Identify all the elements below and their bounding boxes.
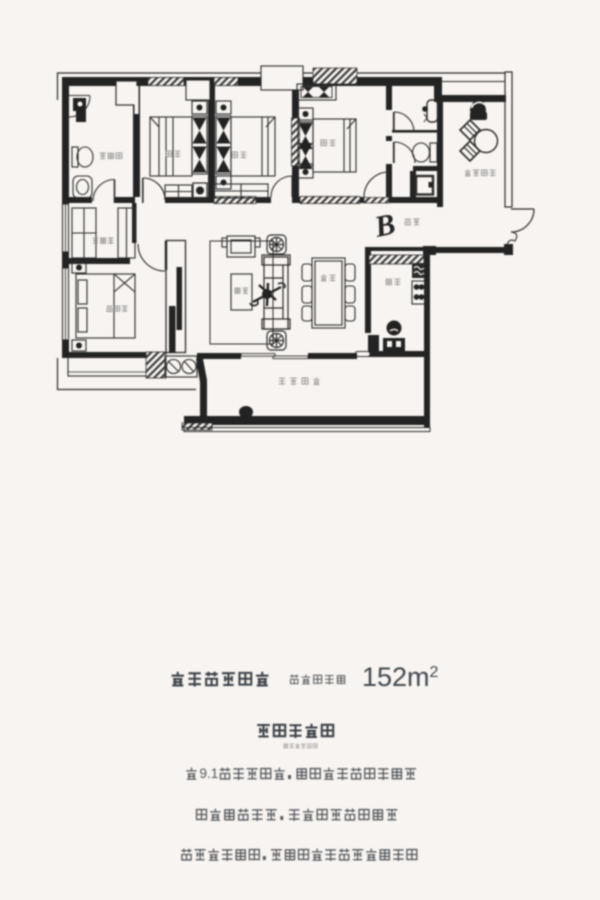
svg-text:9.1: 9.1 xyxy=(200,766,219,781)
svg-text:152m2: 152m2 xyxy=(362,662,439,692)
svg-text:B: B xyxy=(371,207,398,244)
